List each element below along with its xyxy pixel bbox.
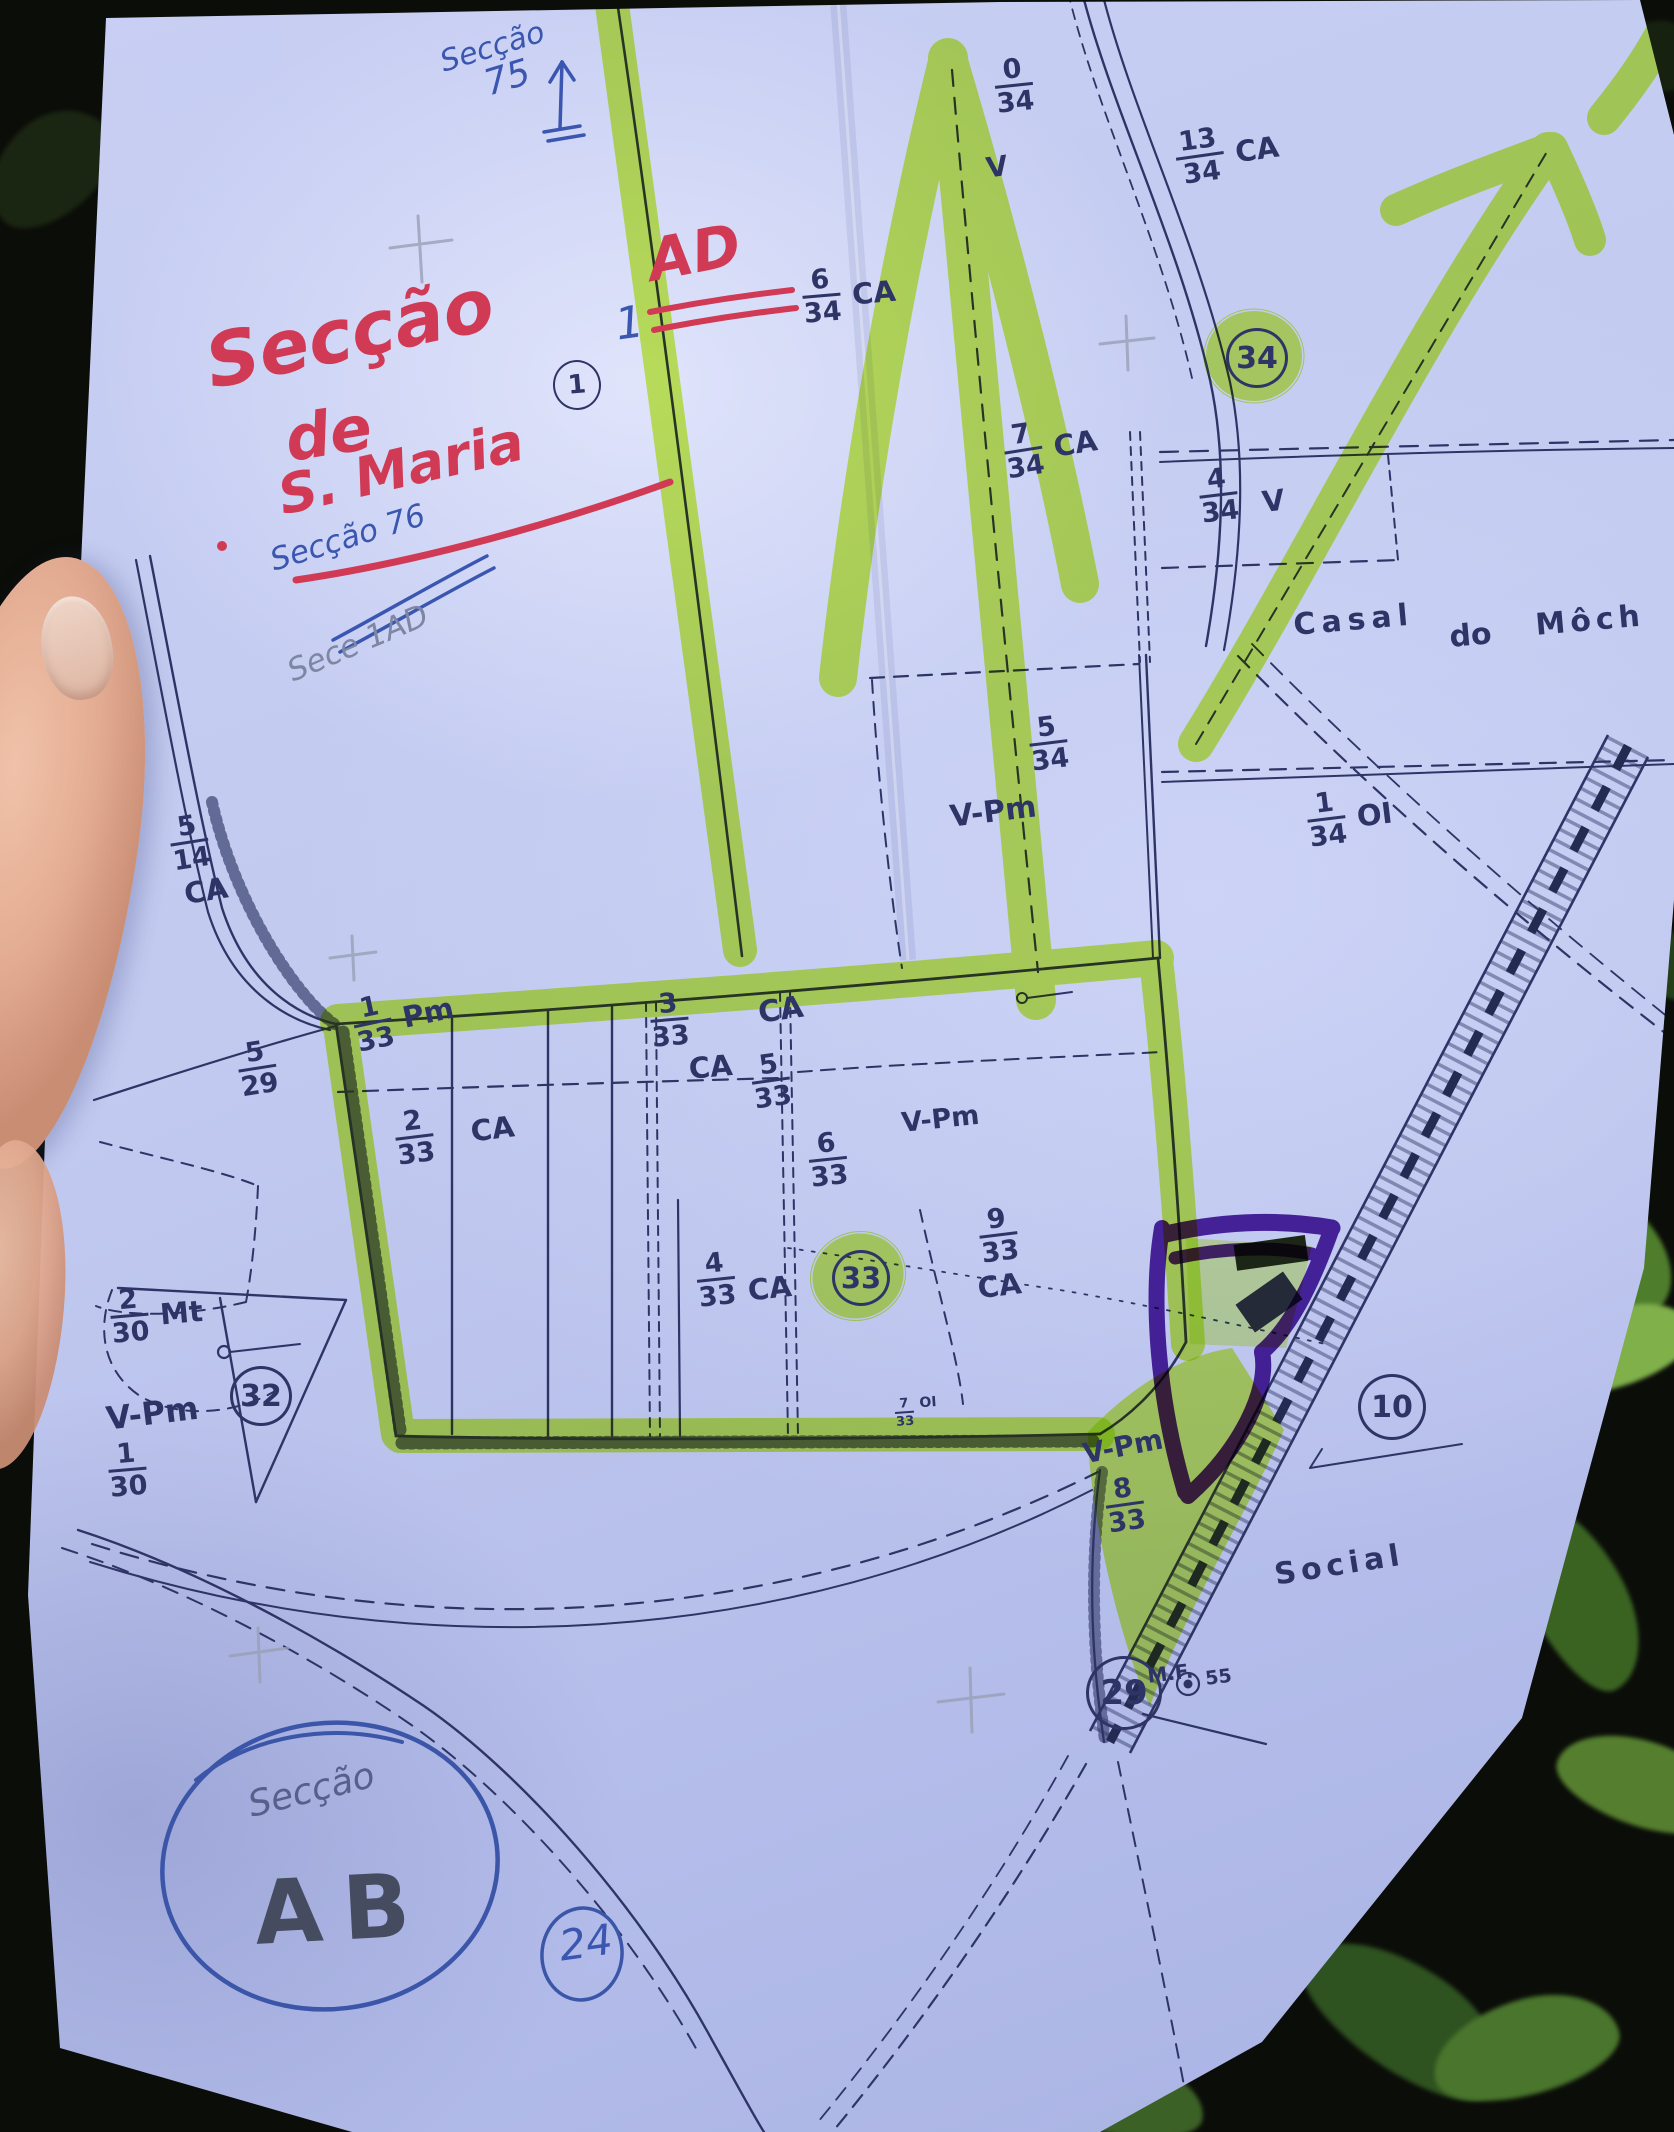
parcel-label: 134OI	[1304, 782, 1396, 854]
parcel-label: 633	[806, 1128, 850, 1193]
circled-section-29: 29	[1086, 1656, 1162, 1730]
land-code: CA	[756, 990, 806, 1031]
parcel-label: 433CA	[694, 1242, 793, 1313]
parcel-label: 634CA	[800, 260, 898, 330]
circled-section-10: 10	[1358, 1374, 1426, 1440]
photo-of-cadastral-map: { "colors": { "highlighter": "#c9f43e", …	[0, 0, 1674, 2132]
parcel-label: 333CA	[648, 985, 734, 1087]
circled-section-32: 32	[230, 1366, 292, 1426]
parcel-label: 434V	[1196, 458, 1287, 529]
place-name-do: do	[1448, 616, 1493, 655]
foliage-leaf	[1546, 1713, 1674, 1851]
parcel-label: 733OI	[894, 1395, 938, 1429]
handwriting-ab: AB	[252, 1853, 432, 1965]
circled-section-34: 34	[1226, 328, 1288, 388]
mf-number: 55	[1204, 1665, 1233, 1690]
parcel-label: 130	[106, 1439, 149, 1504]
parcel-label: 534	[1026, 711, 1071, 777]
map-sheet: 034 V 634CA 1334CA 734CA 434V 534 V-Pm 1…	[0, 0, 1674, 2132]
parcel-label: 034	[992, 54, 1036, 119]
parcel-label: 230Mt	[108, 1280, 205, 1349]
circled-section-33: 33	[832, 1250, 890, 1306]
handwriting-24: 24	[556, 1915, 616, 1971]
land-code: V	[984, 149, 1010, 185]
